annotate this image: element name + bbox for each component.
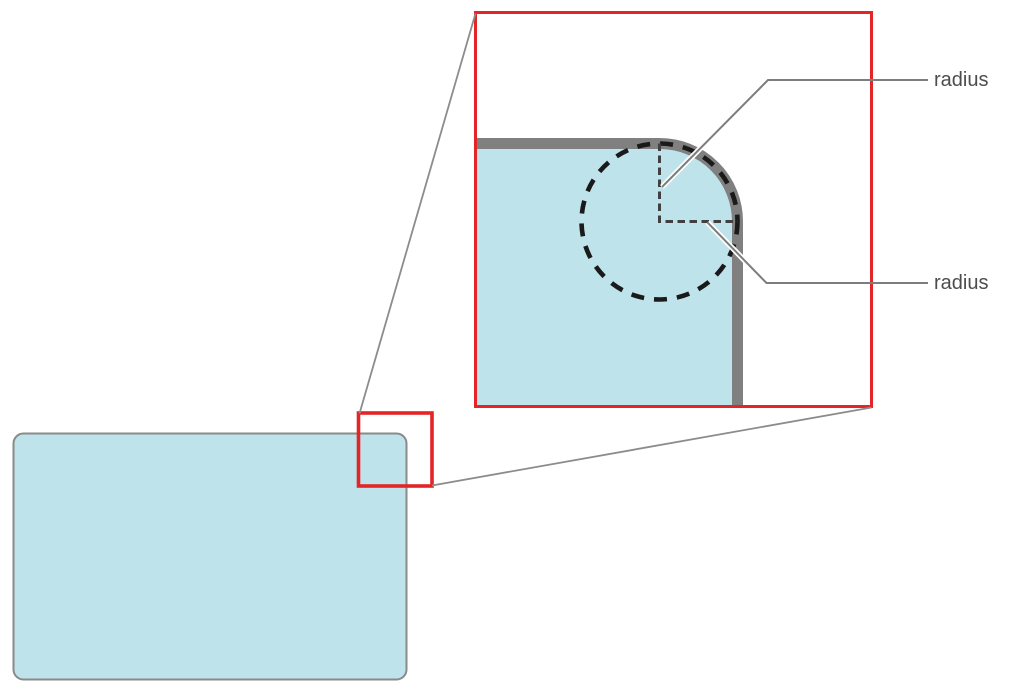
source-rounded-rectangle — [14, 434, 407, 680]
diagram-canvas: radius radius — [0, 0, 1015, 694]
connector-line-bottom — [432, 408, 872, 486]
radius-label-top: radius — [934, 69, 988, 91]
connector-line-top — [360, 14, 476, 414]
corner-radius-diagram: radius radius — [0, 0, 1015, 694]
radius-label-bottom: radius — [934, 272, 988, 294]
